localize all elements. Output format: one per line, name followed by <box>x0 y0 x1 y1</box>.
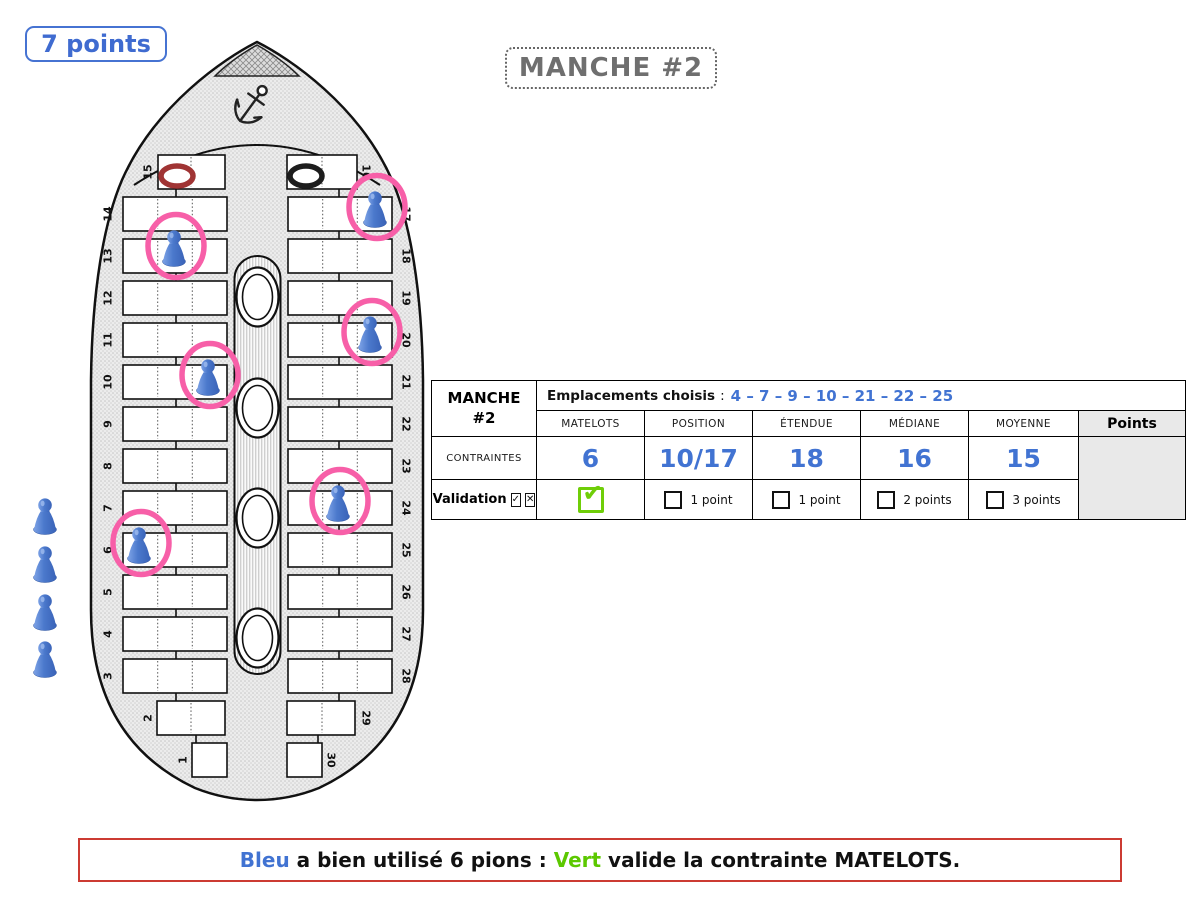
bench-label-1: 1 <box>177 756 190 764</box>
etendue-points-label: 1 point <box>798 493 840 507</box>
mediane-points-label: 2 points <box>903 493 951 507</box>
bench-11[interactable] <box>123 323 227 357</box>
bench-label-11: 11 <box>102 332 115 347</box>
bench-label-14: 14 <box>102 206 115 222</box>
column-header-position: POSITION <box>645 411 753 437</box>
contraintes-label: CONTRAINTES <box>432 437 537 480</box>
bench-26[interactable] <box>288 575 392 609</box>
bench-8[interactable] <box>123 449 227 483</box>
value-matelots: 6 <box>537 437 645 480</box>
crossed-box-icon: ✕ <box>525 493 535 507</box>
banner-color-word: Vert <box>554 848 601 872</box>
column-header-points: Points <box>1079 411 1186 437</box>
bench-18[interactable] <box>288 239 392 273</box>
reserve-blue-pawn-2[interactable] <box>34 546 57 582</box>
position-validation-cell: 1 point <box>645 480 753 520</box>
bench-3[interactable] <box>123 659 227 693</box>
bench-23[interactable] <box>288 449 392 483</box>
bench-12[interactable] <box>123 281 227 315</box>
bench-label-21: 21 <box>400 374 413 389</box>
matelots-validation-cell: ✔ <box>537 480 645 520</box>
matelots-checkbox-checked[interactable]: ✔ <box>578 487 604 513</box>
bench-9[interactable] <box>123 407 227 441</box>
banner-text-1: a bien utilisé 6 pions : <box>290 848 554 872</box>
table-round-cell: MANCHE #2 <box>432 381 537 437</box>
bench-29[interactable] <box>287 701 355 735</box>
bench-label-19: 19 <box>400 290 413 305</box>
bench-label-18: 18 <box>400 248 413 263</box>
bench-label-7: 7 <box>102 504 115 512</box>
bench-label-3: 3 <box>102 672 115 680</box>
bench-label-15: 15 <box>142 164 155 179</box>
moyenne-checkbox[interactable] <box>986 491 1004 509</box>
points-cell <box>1079 437 1186 520</box>
etendue-validation-cell: 1 point <box>753 480 861 520</box>
reserve-blue-pawn-4[interactable] <box>34 641 57 677</box>
value-position: 10/17 <box>645 437 753 480</box>
mediane-checkbox[interactable] <box>877 491 895 509</box>
column-header-matelots: MATELOTS <box>537 411 645 437</box>
bench-4[interactable] <box>123 617 227 651</box>
reserve-pawns-layer <box>34 498 57 677</box>
bench-label-12: 12 <box>102 290 115 305</box>
reserve-blue-pawn-1[interactable] <box>34 498 57 534</box>
value-moyenne: 15 <box>969 437 1079 480</box>
mediane-validation-cell: 2 points <box>861 480 969 520</box>
bench-label-22: 22 <box>400 416 413 431</box>
validation-row-label: Validation ✓ ✕ <box>432 480 537 520</box>
bench-label-24: 24 <box>400 500 413 516</box>
emplacements-separator: : <box>720 388 725 404</box>
result-banner: Bleu a bien utilisé 6 pions : Vert valid… <box>78 838 1122 882</box>
column-header-etendue: ÉTENDUE <box>753 411 861 437</box>
bench-label-23: 23 <box>400 458 413 473</box>
position-points-label: 1 point <box>690 493 732 507</box>
bench-label-29: 29 <box>360 710 373 725</box>
moyenne-validation-cell: 3 points <box>969 480 1079 520</box>
bench-label-9: 9 <box>102 420 115 428</box>
bench-label-30: 30 <box>325 752 338 768</box>
round-line1: MANCHE <box>448 389 521 409</box>
column-header-mediane: MÉDIANE <box>861 411 969 437</box>
bench-30[interactable] <box>287 743 322 777</box>
green-check-icon: ✔ <box>582 484 602 503</box>
bench-label-10: 10 <box>102 374 115 390</box>
value-etendue: 18 <box>753 437 861 480</box>
value-mediane: 16 <box>861 437 969 480</box>
bench-label-2: 2 <box>142 714 155 722</box>
checked-box-icon: ✓ <box>511 493 521 507</box>
moyenne-points-label: 3 points <box>1012 493 1060 507</box>
emplacements-values: 4 – 7 – 9 – 10 – 21 – 22 – 25 <box>731 387 953 405</box>
etendue-checkbox[interactable] <box>772 491 790 509</box>
emplacements-cell: Emplacements choisis : 4 – 7 – 9 – 10 – … <box>537 381 1186 411</box>
round-title: MANCHE #2 <box>505 47 717 89</box>
bench-21[interactable] <box>288 365 392 399</box>
column-header-moyenne: MOYENNE <box>969 411 1079 437</box>
bench-label-8: 8 <box>102 462 115 470</box>
bench-label-5: 5 <box>102 588 115 596</box>
bench-7[interactable] <box>123 491 227 525</box>
emplacements-label: Emplacements choisis <box>547 388 715 404</box>
bench-label-27: 27 <box>400 626 413 641</box>
banner-text-2: valide la contrainte MATELOTS. <box>601 848 960 872</box>
round-line2: #2 <box>472 409 495 429</box>
bench-1[interactable] <box>192 743 227 777</box>
bench-22[interactable] <box>288 407 392 441</box>
bench-label-13: 13 <box>102 248 115 263</box>
boat-board: 1234567891011121314151617181920212223242… <box>0 0 470 830</box>
bench-19[interactable] <box>288 281 392 315</box>
bench-label-26: 26 <box>400 584 413 600</box>
bench-label-4: 4 <box>102 630 115 638</box>
bench-label-25: 25 <box>400 542 413 557</box>
bench-27[interactable] <box>288 617 392 651</box>
validation-label: Validation <box>433 492 507 507</box>
reserve-blue-pawn-3[interactable] <box>34 594 57 630</box>
banner-player-name: Bleu <box>240 848 290 872</box>
position-checkbox[interactable] <box>664 491 682 509</box>
score-table: MANCHE #2 Emplacements choisis : 4 – 7 –… <box>431 380 1186 520</box>
bench-28[interactable] <box>288 659 392 693</box>
bench-25[interactable] <box>288 533 392 567</box>
bench-5[interactable] <box>123 575 227 609</box>
bench-label-28: 28 <box>400 668 413 683</box>
game-screen: 7 points MANCHE #2 <box>0 0 1199 900</box>
